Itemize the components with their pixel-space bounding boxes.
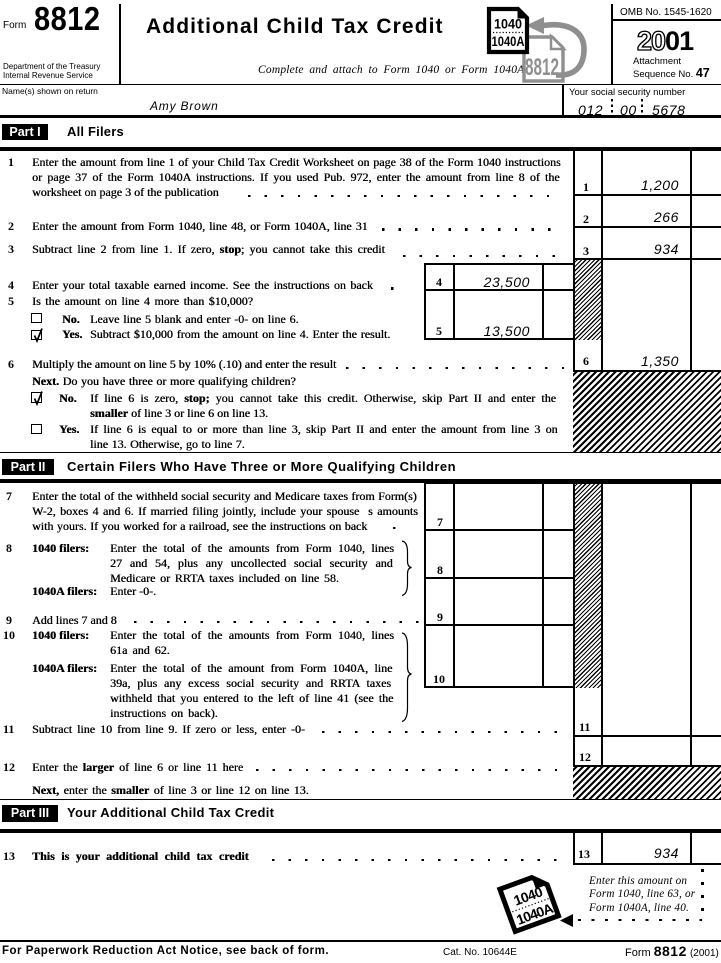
svg-text:8812: 8812: [525, 54, 559, 81]
svg-text:1040A: 1040A: [492, 33, 525, 49]
svg-text:1040: 1040: [494, 16, 522, 32]
